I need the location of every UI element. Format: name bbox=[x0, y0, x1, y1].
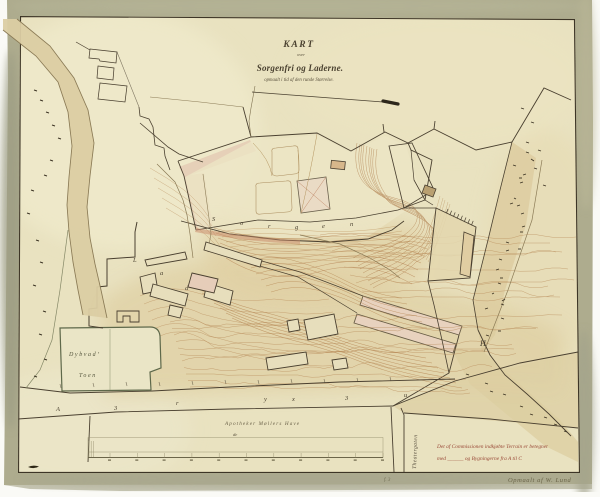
svg-text:Opmaalt af W. Lund: Opmaalt af W. Lund bbox=[508, 477, 571, 484]
svg-text:e: e bbox=[322, 223, 325, 230]
svg-text:x: x bbox=[291, 396, 295, 403]
svg-text:Toen: Toen bbox=[79, 373, 97, 379]
svg-text:Theatergaten: Theatergaten bbox=[412, 434, 419, 469]
svg-text:over: over bbox=[297, 52, 305, 57]
svg-text:a: a bbox=[160, 270, 163, 277]
svg-text:KART: KART bbox=[282, 40, 314, 50]
svg-text:A: A bbox=[55, 406, 60, 413]
svg-text:L: L bbox=[132, 257, 137, 264]
svg-text:de: de bbox=[233, 432, 237, 437]
svg-text:y: y bbox=[263, 396, 267, 403]
svg-text:opmaalt i tid af den runde Stø: opmaalt i tid af den runde Størrelse. bbox=[264, 78, 334, 83]
svg-text:Det af Commissionen indkjøbte: Det af Commissionen indkjøbte Terrain er… bbox=[436, 443, 548, 450]
svg-text:Apotheker Møllers Have: Apotheker Møllers Have bbox=[224, 421, 300, 427]
svg-text:Sorgenfri og Laderne.: Sorgenfri og Laderne. bbox=[257, 63, 343, 73]
svg-text:n: n bbox=[350, 221, 353, 228]
svg-text:med ______ og Bygningerne fra: med ______ og Bygningerne fra A til C bbox=[437, 455, 522, 462]
svg-text:Dybvad’: Dybvad’ bbox=[68, 352, 101, 358]
svg-text:f. 3: f. 3 bbox=[384, 478, 391, 483]
